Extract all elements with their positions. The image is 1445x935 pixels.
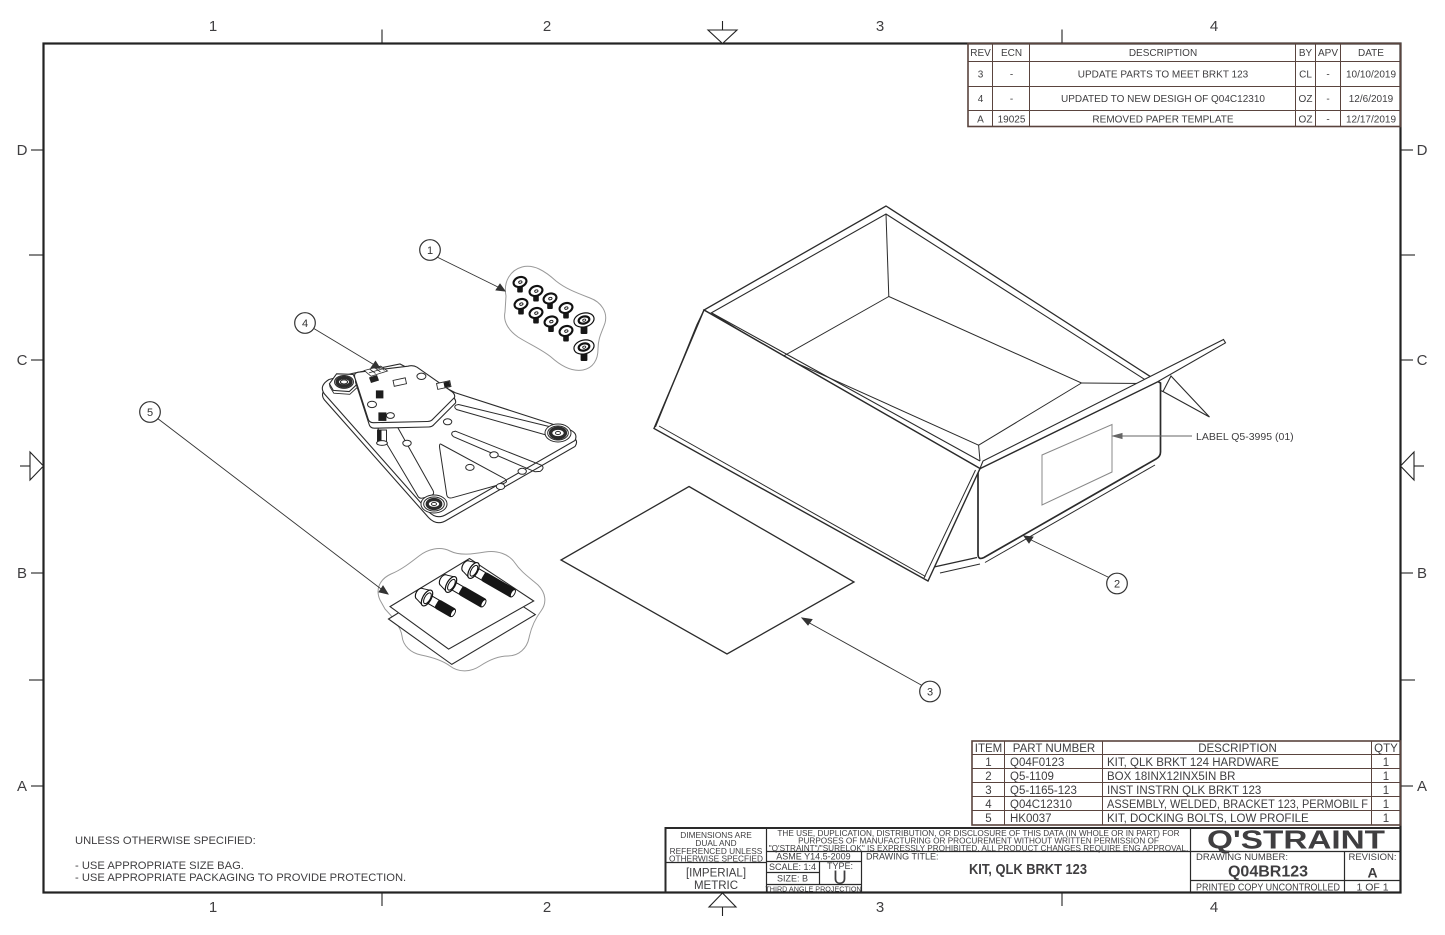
- svg-text:4: 4: [1210, 899, 1218, 916]
- svg-text:3: 3: [978, 70, 984, 81]
- svg-text:Q5-1165-123: Q5-1165-123: [1010, 785, 1077, 797]
- svg-text:U: U: [833, 868, 847, 889]
- svg-text:PRINTED COPY UNCONTROLLED: PRINTED COPY UNCONTROLLED: [1196, 883, 1340, 894]
- svg-text:5: 5: [985, 813, 991, 825]
- svg-text:4: 4: [302, 318, 308, 330]
- svg-text:D: D: [17, 142, 28, 159]
- svg-text:1: 1: [1383, 785, 1389, 797]
- svg-text:ECN: ECN: [1001, 48, 1022, 59]
- svg-text:1: 1: [209, 18, 217, 35]
- svg-text:12/17/2019: 12/17/2019: [1346, 115, 1396, 126]
- svg-text:OTHERWISE SPECFIED: OTHERWISE SPECFIED: [669, 854, 763, 864]
- svg-text:B: B: [1417, 565, 1427, 582]
- svg-text:Q04BR123: Q04BR123: [1228, 864, 1308, 881]
- svg-text:D: D: [1417, 142, 1428, 159]
- svg-text:-: -: [1326, 115, 1329, 126]
- svg-text:DRAWING NUMBER:: DRAWING NUMBER:: [1196, 852, 1288, 863]
- svg-text:ASME Y14.5-2009: ASME Y14.5-2009: [776, 852, 850, 862]
- svg-text:Q04F0123: Q04F0123: [1010, 757, 1064, 769]
- svg-text:A: A: [1367, 865, 1377, 881]
- svg-text:REV: REV: [970, 48, 991, 59]
- svg-text:1: 1: [985, 757, 991, 769]
- svg-text:- USE APPROPRIATE PACKAGING TO: - USE APPROPRIATE PACKAGING TO PROVIDE P…: [75, 872, 406, 884]
- svg-text:DATE: DATE: [1358, 48, 1384, 59]
- svg-text:3: 3: [876, 899, 884, 916]
- svg-text:Q'STRAINT: Q'STRAINT: [1207, 825, 1385, 855]
- svg-text:19025: 19025: [998, 115, 1026, 126]
- svg-text:[IMPERIAL]: [IMPERIAL]: [686, 868, 746, 880]
- svg-text:-: -: [1326, 94, 1329, 105]
- svg-text:-: -: [1010, 94, 1013, 105]
- svg-text:DRAWING TITLE:: DRAWING TITLE:: [866, 852, 939, 862]
- svg-text:UNLESS OTHERWISE SPECIFIED:: UNLESS OTHERWISE SPECIFIED:: [75, 835, 256, 847]
- svg-text:3: 3: [876, 18, 884, 35]
- svg-text:1 OF 1: 1 OF 1: [1356, 882, 1388, 894]
- svg-text:DESCRIPTION: DESCRIPTION: [1198, 743, 1277, 755]
- svg-text:KIT, QLK BRKT 123: KIT, QLK BRKT 123: [969, 861, 1087, 878]
- svg-text:UPDATED TO NEW DESIGH OF Q04C1: UPDATED TO NEW DESIGH OF Q04C12310: [1061, 94, 1265, 105]
- svg-text:-: -: [1010, 70, 1013, 81]
- svg-text:A: A: [1417, 778, 1427, 795]
- svg-text:UPDATE PARTS TO MEET BRKT 123: UPDATE PARTS TO MEET BRKT 123: [1078, 70, 1249, 81]
- svg-text:4: 4: [978, 94, 984, 105]
- svg-text:OZ: OZ: [1299, 94, 1313, 105]
- svg-text:KIT, DOCKING BOLTS, LOW PROFIL: KIT, DOCKING BOLTS, LOW PROFILE: [1107, 813, 1309, 825]
- svg-text:2: 2: [543, 899, 551, 916]
- svg-text:PART NUMBER: PART NUMBER: [1013, 743, 1095, 755]
- svg-text:HK0037: HK0037: [1010, 813, 1052, 825]
- svg-text:4: 4: [1210, 18, 1218, 35]
- svg-text:3: 3: [985, 785, 991, 797]
- svg-text:4: 4: [985, 799, 992, 811]
- svg-text:LABEL Q5-3995 (01): LABEL Q5-3995 (01): [1196, 431, 1294, 443]
- svg-text:2: 2: [1114, 579, 1120, 591]
- svg-text:BOX 18INX12INX5IN BR: BOX 18INX12INX5IN BR: [1107, 771, 1235, 783]
- svg-text:1: 1: [1383, 757, 1389, 769]
- svg-text:CL: CL: [1299, 70, 1312, 81]
- svg-text:C: C: [1417, 352, 1428, 369]
- svg-text:SIZE: B: SIZE: B: [777, 874, 808, 884]
- svg-text:1: 1: [209, 899, 217, 916]
- svg-text:THIRD ANGLE PROJECTION: THIRD ANGLE PROJECTION: [765, 885, 861, 894]
- svg-text:KIT, QLK BRKT 124 HARDWARE: KIT, QLK BRKT 124 HARDWARE: [1107, 757, 1279, 769]
- svg-text:A: A: [977, 115, 984, 126]
- svg-text:- USE APPROPRIATE SIZE BAG.: - USE APPROPRIATE SIZE BAG.: [75, 860, 244, 872]
- svg-text:Q5-1109: Q5-1109: [1010, 771, 1054, 783]
- svg-text:SCALE: 1:4: SCALE: 1:4: [769, 862, 816, 872]
- svg-text:10/10/2019: 10/10/2019: [1346, 70, 1396, 81]
- svg-text:ITEM: ITEM: [975, 743, 1002, 755]
- svg-text:1: 1: [1383, 799, 1389, 811]
- svg-text:1: 1: [1383, 813, 1389, 825]
- svg-text:2: 2: [543, 18, 551, 35]
- svg-text:B: B: [17, 565, 27, 582]
- svg-text:REVISION:: REVISION:: [1348, 852, 1396, 863]
- svg-text:ASSEMBLY, WELDED, BRACKET 123,: ASSEMBLY, WELDED, BRACKET 123, PERMOBIL …: [1107, 799, 1368, 811]
- svg-text:QTY: QTY: [1374, 743, 1398, 755]
- svg-text:METRIC: METRIC: [694, 880, 738, 892]
- svg-text:3: 3: [927, 687, 933, 699]
- svg-text:-: -: [1326, 70, 1329, 81]
- svg-text:A: A: [17, 778, 27, 795]
- svg-text:APV: APV: [1318, 48, 1338, 59]
- svg-text:INST INSTRN QLK BRKT 123: INST INSTRN QLK BRKT 123: [1107, 785, 1261, 797]
- svg-text:12/6/2019: 12/6/2019: [1349, 94, 1394, 105]
- svg-text:OZ: OZ: [1299, 115, 1313, 126]
- svg-text:1: 1: [427, 245, 433, 257]
- svg-text:BY: BY: [1299, 48, 1313, 59]
- svg-text:1: 1: [1383, 771, 1389, 783]
- svg-text:DESCRIPTION: DESCRIPTION: [1129, 48, 1197, 59]
- svg-text:C: C: [17, 352, 28, 369]
- svg-text:2: 2: [985, 771, 991, 783]
- svg-text:REMOVED PAPER TEMPLATE: REMOVED PAPER TEMPLATE: [1092, 115, 1233, 126]
- svg-text:Q04C12310: Q04C12310: [1010, 799, 1072, 811]
- svg-text:5: 5: [147, 407, 153, 419]
